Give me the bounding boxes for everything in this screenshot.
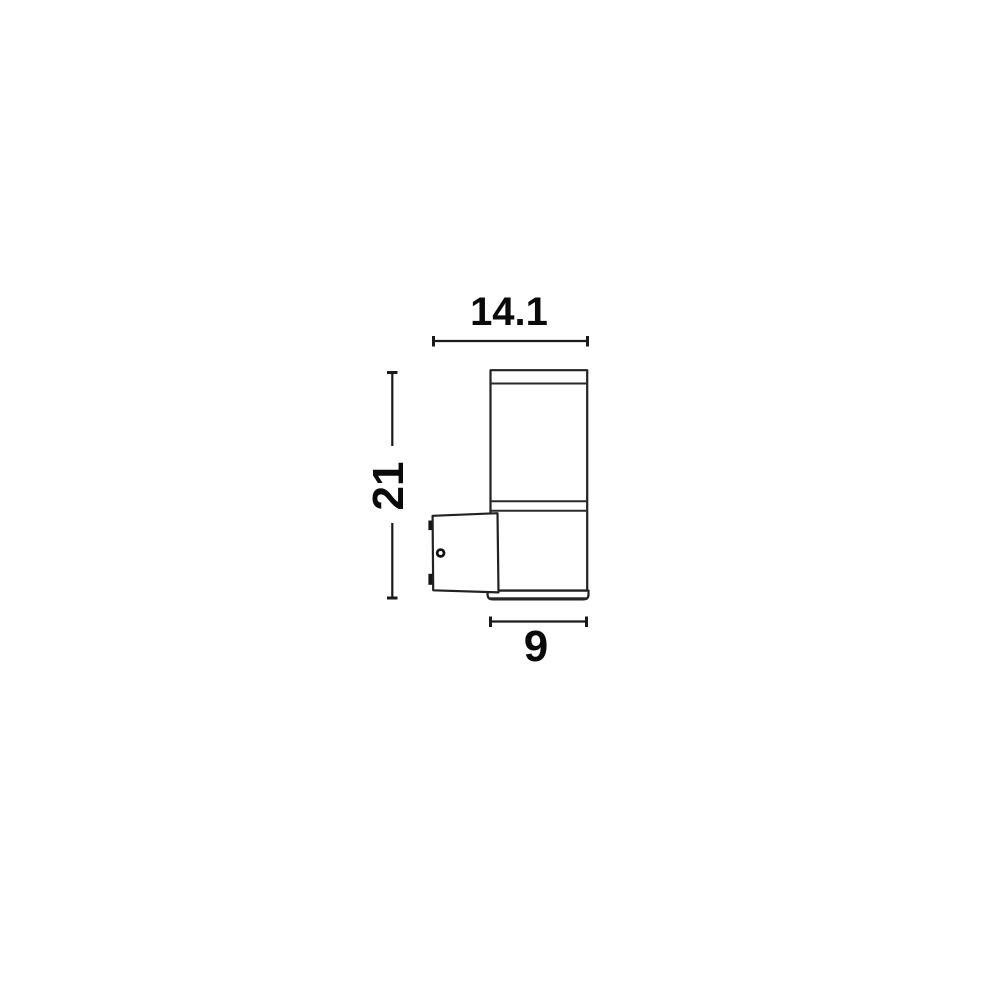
diameter-dimension-label: 9 bbox=[524, 622, 548, 671]
screw-hole-icon bbox=[437, 550, 444, 557]
lamp-cylinder-outline bbox=[491, 370, 588, 590]
mounting-plate-group bbox=[428, 513, 498, 592]
height-dimension-label: 21 bbox=[364, 462, 413, 511]
depth-dimension: 14.1 bbox=[434, 290, 588, 347]
lamp-dimension-diagram: 14.1 21 bbox=[0, 0, 1000, 1000]
lamp-body bbox=[488, 370, 589, 599]
diameter-dimension: 9 bbox=[491, 617, 587, 672]
dimension-drawing-canvas: 14.1 21 bbox=[0, 0, 1000, 1000]
height-dimension: 21 bbox=[364, 373, 413, 599]
depth-dimension-label: 14.1 bbox=[470, 290, 548, 334]
